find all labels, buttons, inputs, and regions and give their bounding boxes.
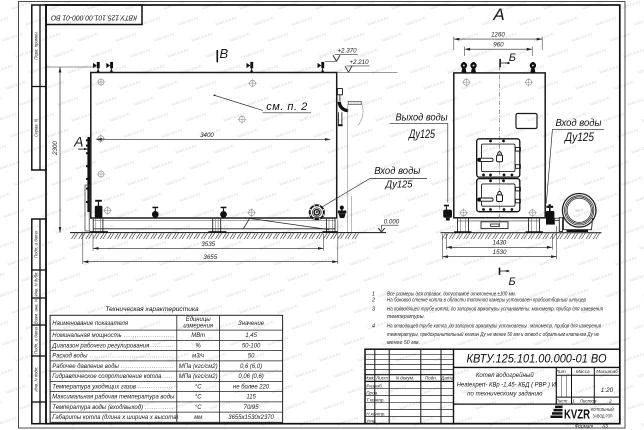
svg-text:КВТУ.125.101.00.000-01 ВО: КВТУ.125.101.00.000-01 ВО: [51, 14, 137, 23]
svg-text:Техническая характеристика: Техническая характеристика: [105, 306, 199, 313]
svg-text:менее 50 мм.: менее 50 мм.: [387, 340, 420, 346]
svg-text:Подп. и дата: Подп. и дата: [33, 326, 38, 354]
svg-text:KVZR: KVZR: [564, 407, 590, 422]
svg-text:1:20: 1:20: [601, 387, 614, 394]
svg-text:°С: °С: [195, 384, 202, 390]
svg-text:3: 3: [372, 306, 375, 312]
svg-text:1: 1: [372, 291, 375, 297]
svg-text:Б: Б: [509, 52, 516, 64]
svg-text:1260: 1260: [491, 32, 505, 39]
svg-text:Лист: Лист: [375, 376, 388, 381]
svg-text:На боковой стенке котла в обла: На боковой стенке котла в области топочн…: [387, 297, 586, 304]
svg-text:Выход воды: Выход воды: [396, 113, 449, 124]
svg-text:по техническому заданию: по техническому заданию: [467, 390, 543, 397]
svg-text:3400: 3400: [200, 132, 214, 139]
svg-text:+2.210: +2.210: [349, 59, 369, 66]
svg-text:Котел водогрейный: Котел водогрейный: [476, 372, 535, 379]
svg-text:ВЕНТ: ВЕНТ: [575, 209, 583, 213]
svg-text:70/95: 70/95: [244, 405, 260, 411]
svg-text:Heatexpert- КВр -1,45- КБД ( Р: Heatexpert- КВр -1,45- КБД ( РВР ) И: [457, 382, 557, 389]
svg-text:Справ. N: Справ. N: [33, 118, 38, 137]
svg-text:Диапазон рабочего регулировани: Диапазон рабочего регулирования: [51, 343, 150, 349]
svg-text:3655х1530х2370: 3655х1530х2370: [228, 415, 274, 421]
svg-text:см. п. 2: см. п. 2: [266, 101, 307, 113]
svg-text:А: А: [73, 134, 83, 150]
svg-text:Масштаб: Масштаб: [596, 369, 618, 374]
svg-text:Габариты котла (длина х ширина: Габариты котла (длина х ширина х высота): [52, 415, 178, 421]
svg-text:Листов: Листов: [579, 398, 597, 403]
svg-text:В: В: [220, 46, 229, 61]
svg-text:0.000: 0.000: [384, 218, 400, 225]
svg-text:%: %: [196, 343, 202, 349]
svg-text:Единицы: Единицы: [186, 317, 212, 323]
svg-text:МПа (кгс/см2): МПа (кгс/см2): [179, 364, 218, 370]
svg-text:1: 1: [572, 398, 575, 403]
svg-text:Подп.: Подп.: [425, 376, 437, 381]
svg-text:°С: °С: [195, 395, 202, 401]
svg-text:Ду125: Ду125: [407, 129, 435, 141]
svg-text:температуры.: температуры.: [387, 314, 425, 320]
svg-text:А3: А3: [601, 424, 608, 429]
svg-text:Вход воды: Вход воды: [374, 166, 421, 177]
svg-text:Изм.: Изм.: [365, 376, 375, 381]
svg-text:Формат: Формат: [575, 424, 594, 429]
svg-text:МВт: МВт: [191, 333, 205, 339]
svg-text:КОТЕЛЬНЫЙ: КОТЕЛЬНЫЙ: [591, 407, 614, 412]
svg-text:Номинальная мощность: Номинальная мощность: [52, 333, 121, 339]
svg-text:Расход воды: Расход воды: [52, 354, 88, 360]
svg-text:Температура уходящих газов: Температура уходящих газов: [52, 384, 136, 390]
svg-text:Наименование показателя: Наименование показателя: [52, 321, 129, 327]
svg-text:2: 2: [608, 398, 612, 403]
svg-text:м3/ч: м3/ч: [192, 354, 204, 360]
svg-text:0,06 (0,6): 0,06 (0,6): [238, 374, 263, 380]
svg-text:Максимальная рабочая температу: Максимальная рабочая температура воды: [52, 395, 175, 401]
svg-text:Ду125: Ду125: [563, 130, 594, 144]
svg-text:Разраб.: Разраб.: [366, 383, 383, 388]
svg-text:2: 2: [371, 298, 375, 304]
svg-text:N докум.: N докум.: [396, 376, 415, 381]
svg-text:Ду125: Ду125: [385, 179, 413, 190]
svg-text:Перв. примен.: Перв. примен.: [33, 31, 38, 60]
svg-text:Гидравлическое сопротивление к: Гидравлическое сопротивление котла: [52, 374, 162, 380]
svg-text:2300: 2300: [52, 141, 59, 156]
svg-text:1430: 1430: [492, 240, 506, 247]
svg-text:Б: Б: [509, 276, 516, 288]
svg-text:температуры, предохранительный: температуры, предохранительный клапан Ду…: [387, 331, 599, 338]
svg-text:Все размеры для справок, допус: Все размеры для справок, допустимое откл…: [387, 291, 516, 297]
svg-text:960: 960: [493, 42, 504, 49]
svg-text:Лит.: Лит.: [555, 369, 567, 374]
svg-text:На подводящей трубе котла, д: На подводящей трубе котла, до запорной а…: [387, 305, 603, 312]
svg-text:3655: 3655: [203, 254, 217, 261]
svg-text:115: 115: [246, 395, 256, 401]
svg-text:Инв. N дубл.: Инв. N дубл.: [33, 272, 38, 297]
svg-text:3535: 3535: [201, 241, 215, 248]
svg-text:Вход воды: Вход воды: [556, 118, 603, 129]
svg-text:не более 220: не более 220: [233, 384, 270, 390]
svg-text:1530: 1530: [493, 249, 507, 256]
svg-text:МПа (кгс/см2): МПа (кгс/см2): [179, 374, 218, 380]
svg-text:мм: мм: [194, 415, 202, 421]
svg-text:Пров.: Пров.: [366, 390, 378, 395]
svg-text:Т.контр.: Т.контр.: [366, 397, 385, 402]
svg-text:КВТУ.125.101.00.000-01 ВО: КВТУ.125.101.00.000-01 ВО: [467, 353, 607, 365]
svg-text:Масса: Масса: [576, 369, 590, 374]
svg-text:50: 50: [248, 354, 255, 360]
svg-text:0,6 (6,0): 0,6 (6,0): [240, 364, 262, 370]
svg-text:+2.370: +2.370: [337, 48, 357, 55]
svg-text:А: А: [492, 5, 504, 24]
svg-text:50-100: 50-100: [242, 343, 261, 349]
svg-text:ЗАВОД РЗП: ЗАВОД РЗП: [593, 413, 613, 418]
svg-text:Утв.: Утв.: [366, 419, 376, 424]
svg-text:Взам. инв. N: Взам. инв. N: [33, 298, 38, 324]
svg-text:Температура воды (вход/выход): Температура воды (вход/выход): [52, 405, 143, 411]
svg-text:измерения: измерения: [183, 324, 214, 330]
svg-text:°С: °С: [195, 405, 202, 411]
svg-text:Инв. N подл.: Инв. N подл.: [33, 366, 38, 391]
svg-text:Рабочее давление воды: Рабочее давление воды: [52, 364, 119, 370]
svg-text:На отводящей трубе котла ,до з: На отводящей трубе котла ,до запорной ар…: [387, 322, 601, 329]
svg-text:Лист: Лист: [555, 398, 568, 403]
svg-text:Значение: Значение: [238, 321, 265, 327]
svg-text:Н.контр.: Н.контр.: [366, 412, 385, 417]
svg-text:1,45: 1,45: [245, 333, 257, 339]
svg-text:4: 4: [372, 323, 375, 329]
svg-text:Подп. и дата: Подп. и дата: [33, 230, 38, 258]
svg-text:Дата: Дата: [440, 376, 454, 381]
